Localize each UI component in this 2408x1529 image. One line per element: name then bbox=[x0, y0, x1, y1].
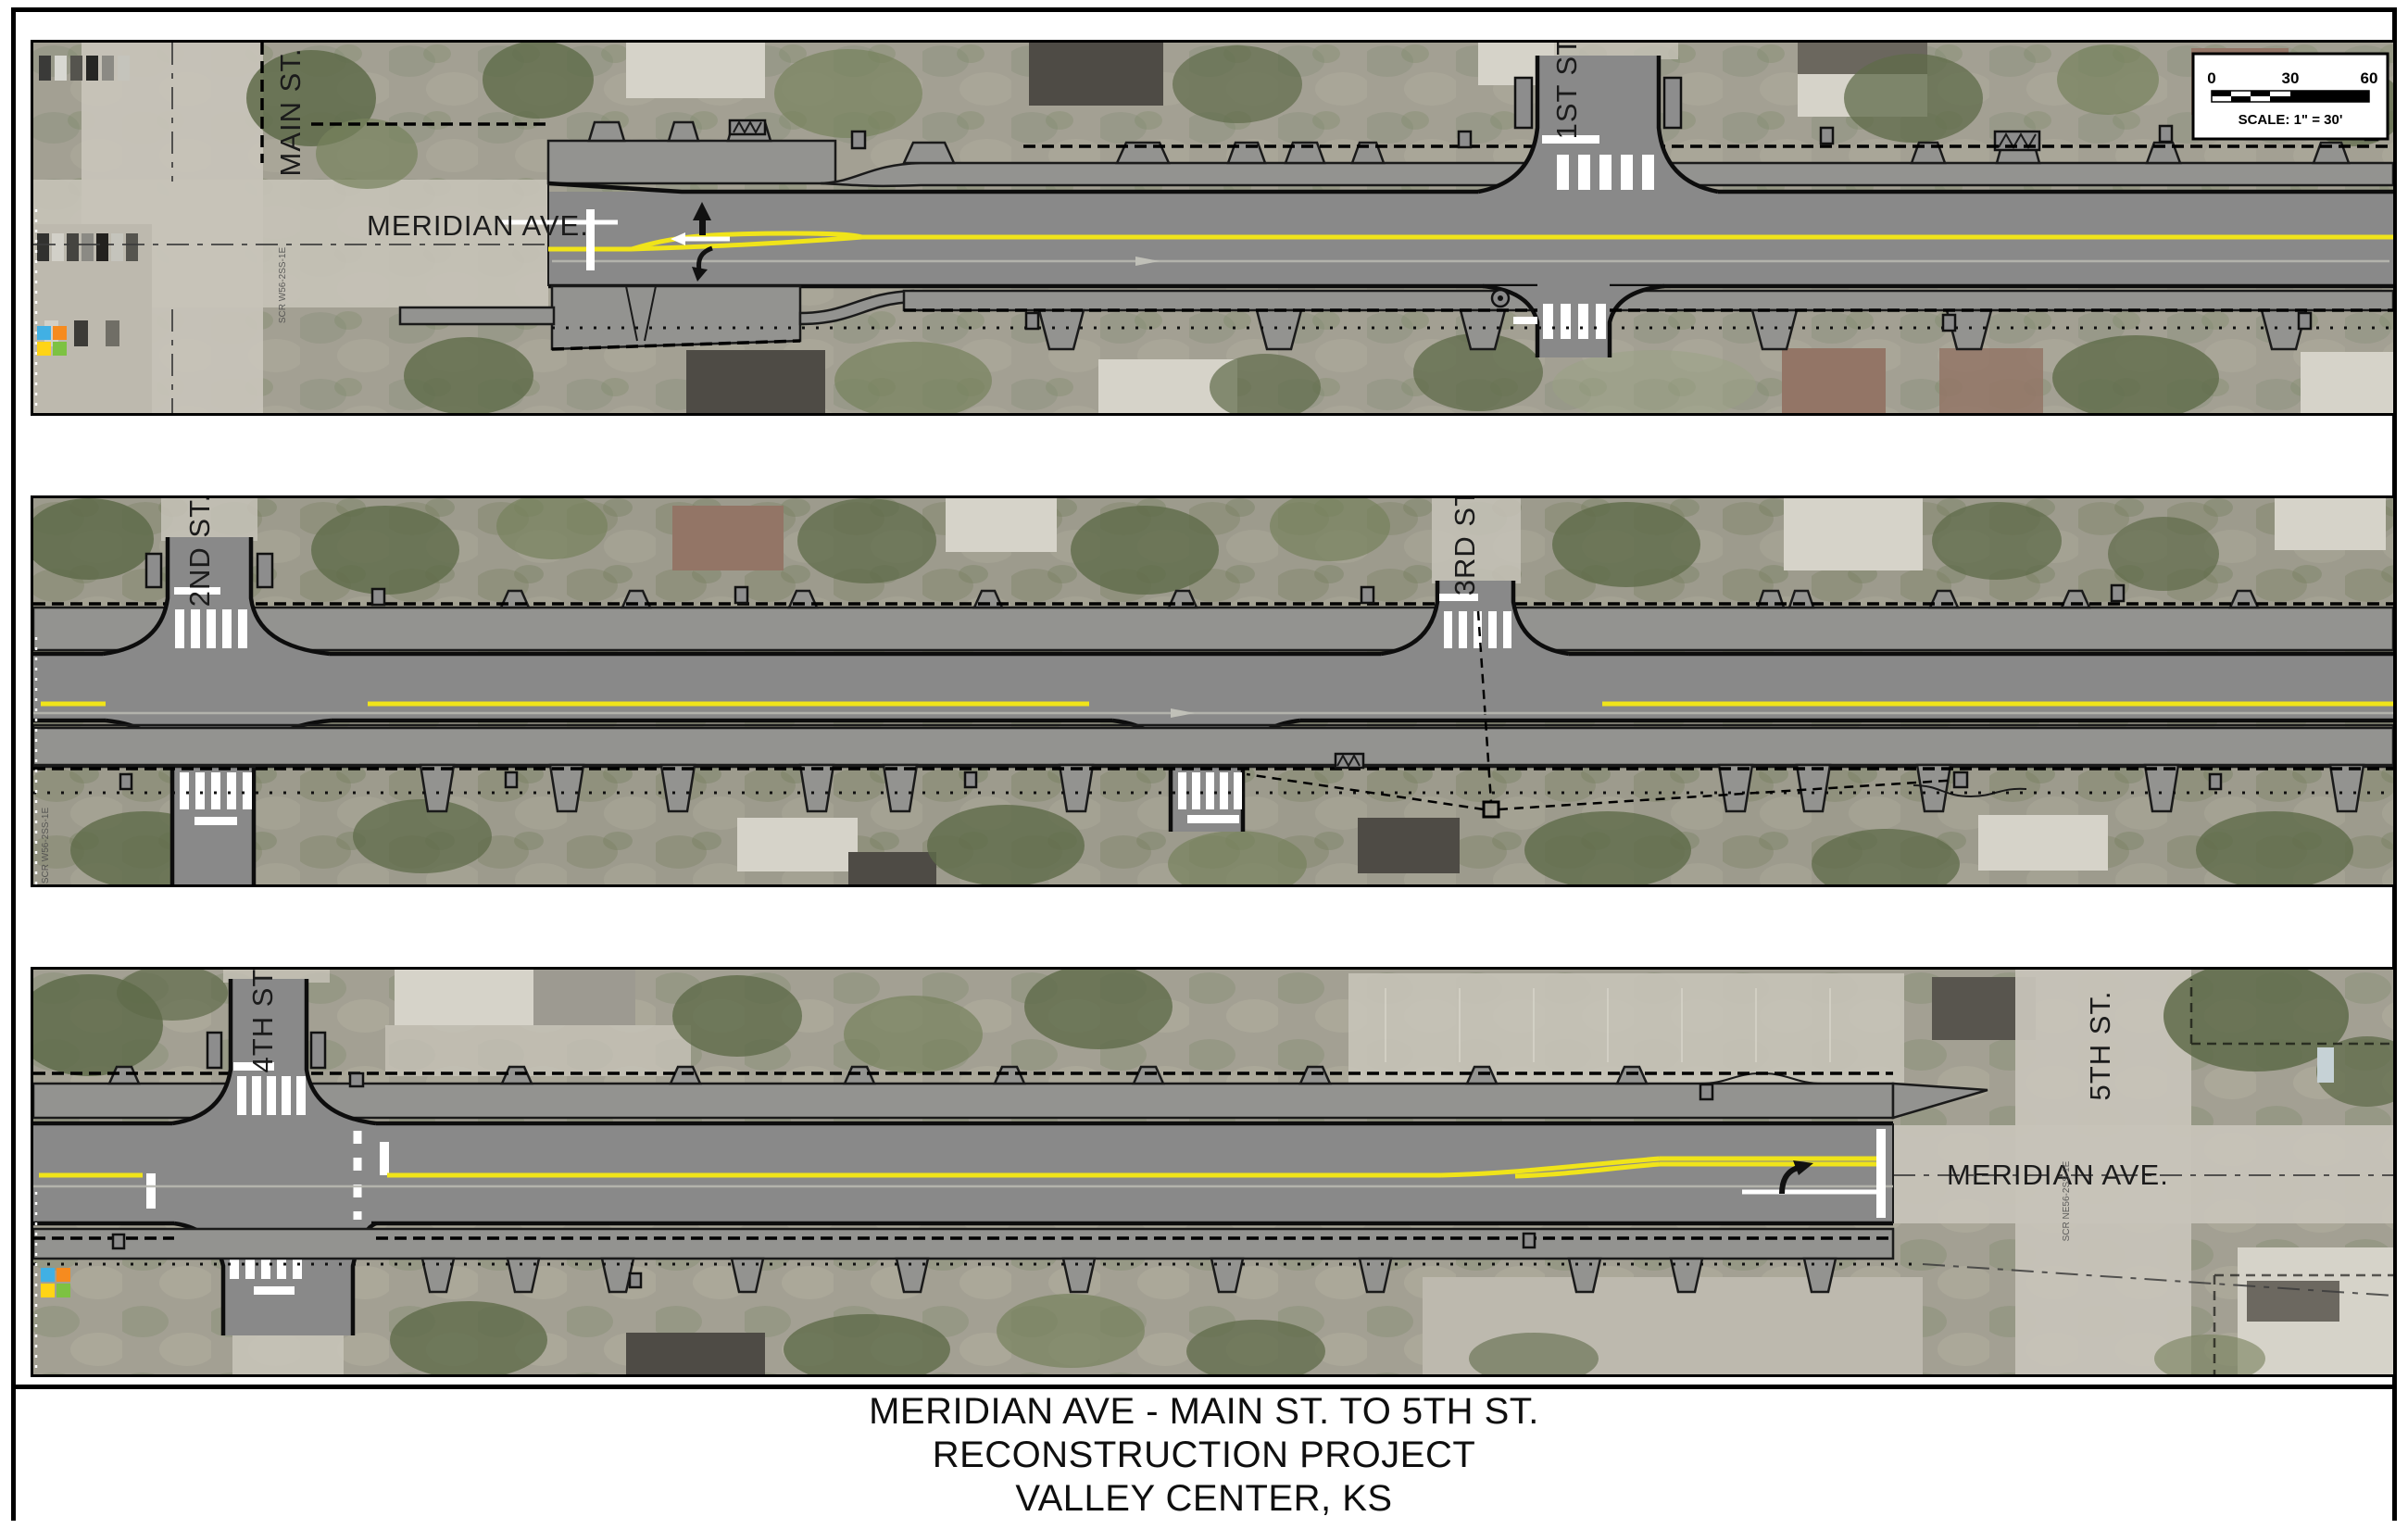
fifth-st-label: 5TH ST. bbox=[2084, 991, 2116, 1101]
panel-1-drawing: 0 30 60 SCALE: 1" = 30' MAIN ST. MERIDIA… bbox=[33, 43, 2393, 413]
project-title-line-3: VALLEY CENTER, KS bbox=[1015, 1477, 1392, 1521]
plan-sheet: 0 30 60 SCALE: 1" = 30' MAIN ST. MERIDIA… bbox=[0, 0, 2408, 1529]
panel-2-drawing: 2ND ST. 3RD ST. SCR W56-2SS-1E bbox=[33, 498, 2393, 884]
stop-bar-5th-st bbox=[1876, 1129, 1886, 1218]
scale-tick-60: 60 bbox=[2361, 69, 2378, 87]
plan-panel-3: 4TH ST. 5TH ST. MERIDIAN AVE. SCR NE56-2… bbox=[31, 967, 2396, 1377]
meridian-ave-label-p3: MERIDIAN AVE. bbox=[1947, 1159, 2169, 1191]
survey-ref-text-p3: SCR NE56-2SS-1E bbox=[2062, 1160, 2072, 1241]
scale-tick-30: 30 bbox=[2282, 69, 2300, 87]
survey-ref-text-p1: SCR W56-2SS-1E bbox=[278, 247, 288, 324]
panel-3-drawing: 4TH ST. 5TH ST. MERIDIAN AVE. SCR NE56-2… bbox=[33, 970, 2393, 1374]
meridian-ave-roadway bbox=[33, 654, 2393, 721]
plan-panel-1: 0 30 60 SCALE: 1" = 30' MAIN ST. MERIDIA… bbox=[31, 40, 2396, 416]
scale-caption: SCALE: 1" = 30' bbox=[2239, 112, 2343, 128]
scale-bar: 0 30 60 SCALE: 1" = 30' bbox=[2193, 54, 2388, 139]
meridian-ave-label-p1: MERIDIAN AVE. bbox=[367, 209, 589, 242]
project-title-line-2: RECONSTRUCTION PROJECT bbox=[933, 1434, 1476, 1477]
first-st-label: 1ST ST. bbox=[1550, 43, 1583, 139]
second-st-label: 2ND ST. bbox=[183, 498, 216, 607]
scale-tick-0: 0 bbox=[2207, 69, 2215, 87]
title-block: MERIDIAN AVE - MAIN ST. TO 5TH ST. RECON… bbox=[16, 1385, 2392, 1521]
plan-panel-2: 2ND ST. 3RD ST. SCR W56-2SS-1E bbox=[31, 495, 2396, 887]
survey-ref-text-p2: SCR W56-2SS-1E bbox=[41, 808, 51, 884]
sheet-border: 0 30 60 SCALE: 1" = 30' MAIN ST. MERIDIA… bbox=[11, 7, 2397, 1521]
fourth-st-label: 4TH ST. bbox=[246, 970, 279, 1072]
third-st-label: 3RD ST. bbox=[1449, 498, 1481, 595]
main-st-label: MAIN ST. bbox=[274, 48, 307, 177]
project-title-line-1: MERIDIAN AVE - MAIN ST. TO 5TH ST. bbox=[869, 1390, 1539, 1434]
